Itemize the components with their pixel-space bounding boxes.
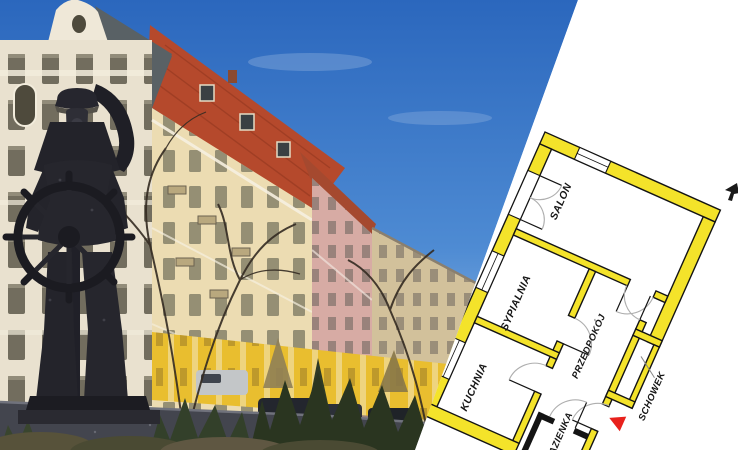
room-label-sypialnia: SYPIALNIA: [498, 273, 533, 332]
ships-wheel: [6, 174, 132, 300]
wall-salon-bottom-right: [653, 291, 668, 303]
room-label-przedpokoj: PRZEDPOKÓJ: [569, 312, 608, 381]
listing-composite: SALON SYPIALNIA KUCHNIA PRZEDPOKÓJ ŁAZIE…: [0, 0, 738, 450]
entrance-marker-icon: [606, 411, 626, 432]
cursor-arrow-icon: [725, 183, 738, 201]
plinth: [26, 396, 150, 410]
wall-hall-right-a: [636, 320, 646, 332]
wall-right: [648, 217, 716, 347]
wall-hall-kuchnia-a: [546, 356, 556, 368]
chimney: [228, 70, 237, 83]
room-label-kuchnia: KUCHNIA: [458, 361, 490, 413]
wall-sypialnia-kuchnia: [474, 316, 559, 359]
wall-schowek-bottom: [606, 390, 635, 408]
wall-hall-sypialnia-a: [568, 269, 595, 318]
room-label-salon: SALON: [548, 181, 575, 221]
wall-top: [540, 132, 721, 222]
